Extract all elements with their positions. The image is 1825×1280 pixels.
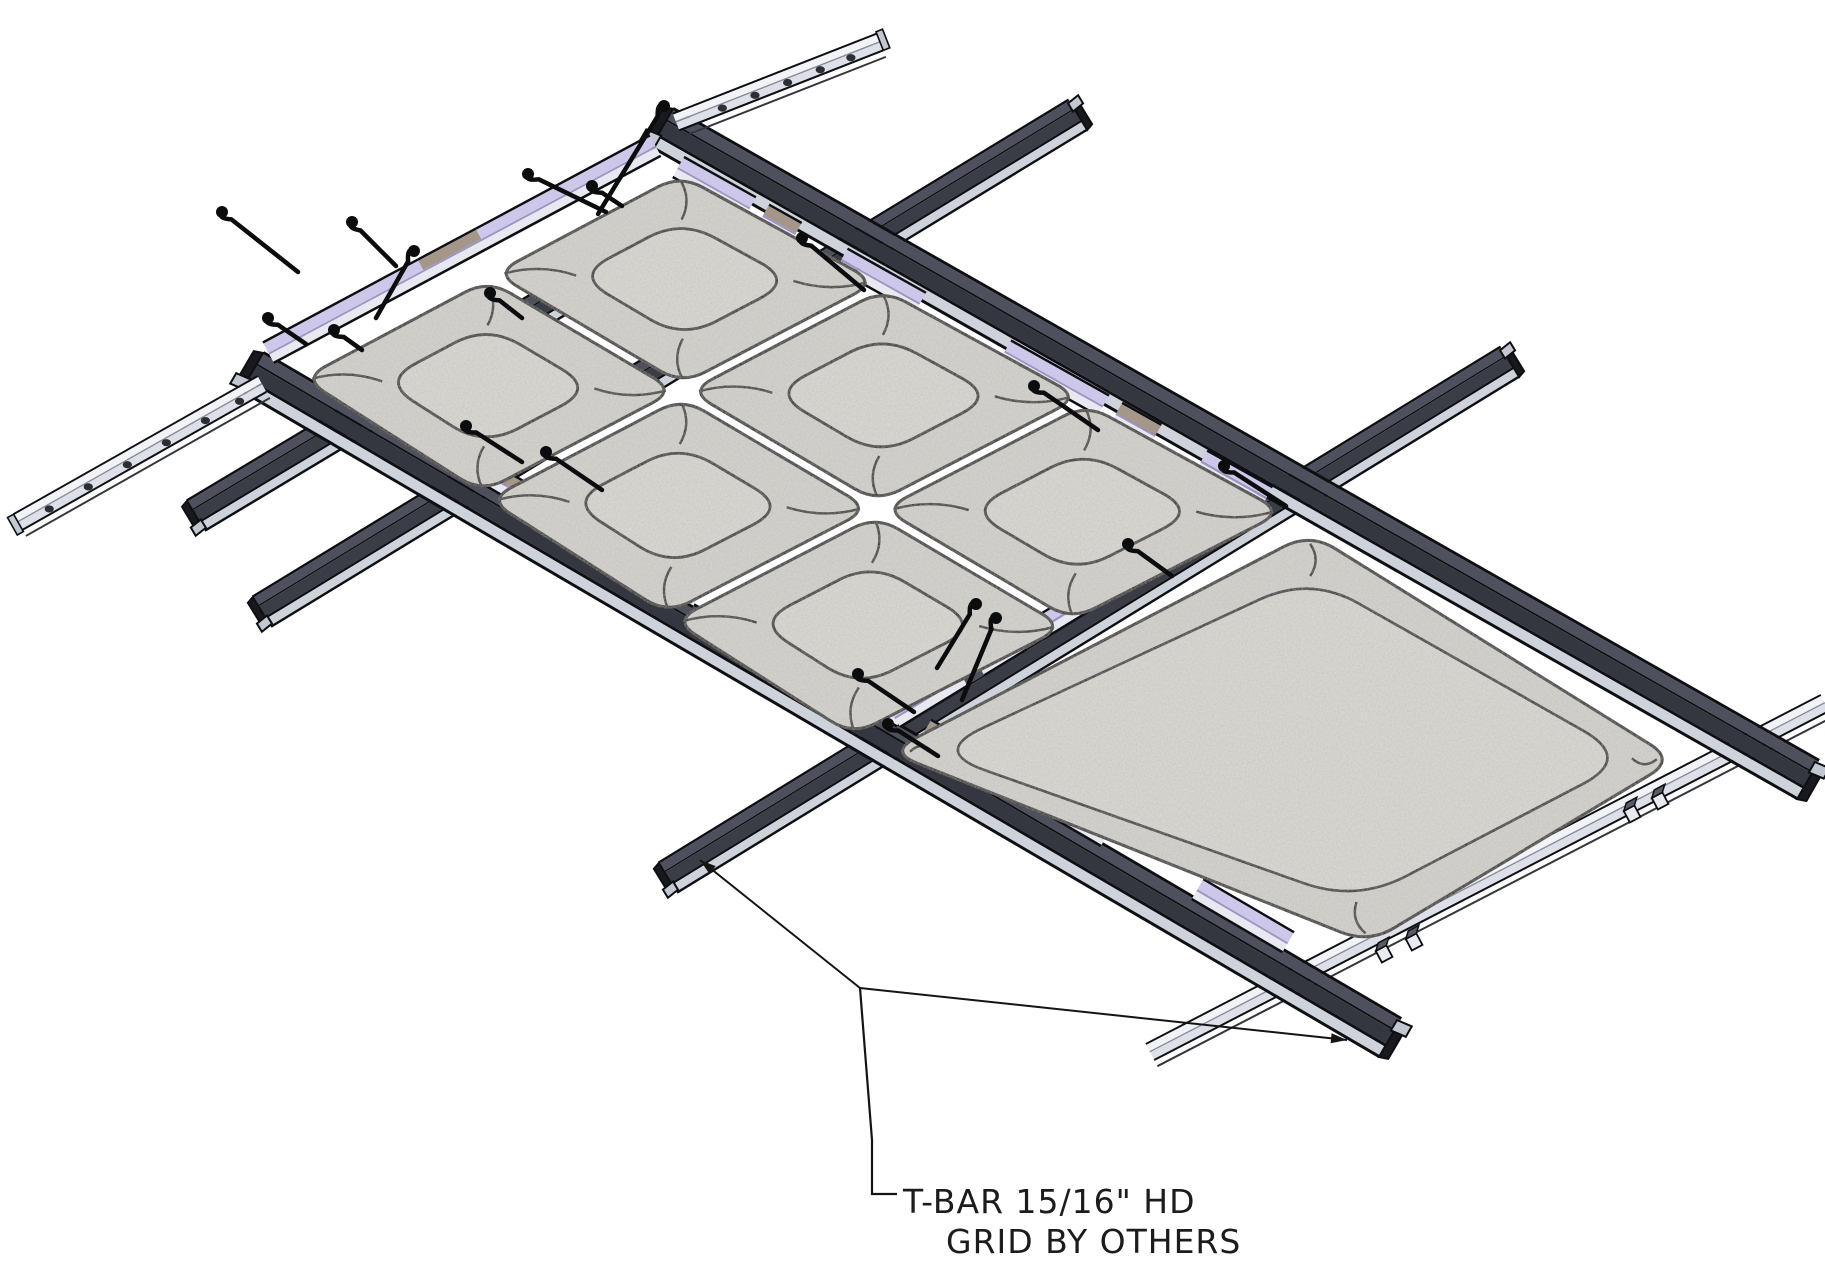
- label-line-2: GRID BY OTHERS: [946, 1222, 1241, 1261]
- drawing-stage: T-BAR 15/16" HD GRID BY OTHERS: [0, 0, 1825, 1280]
- isometric-diagram: T-BAR 15/16" HD GRID BY OTHERS: [0, 0, 1825, 1280]
- label-line-1: T-BAR 15/16" HD: [902, 1182, 1196, 1221]
